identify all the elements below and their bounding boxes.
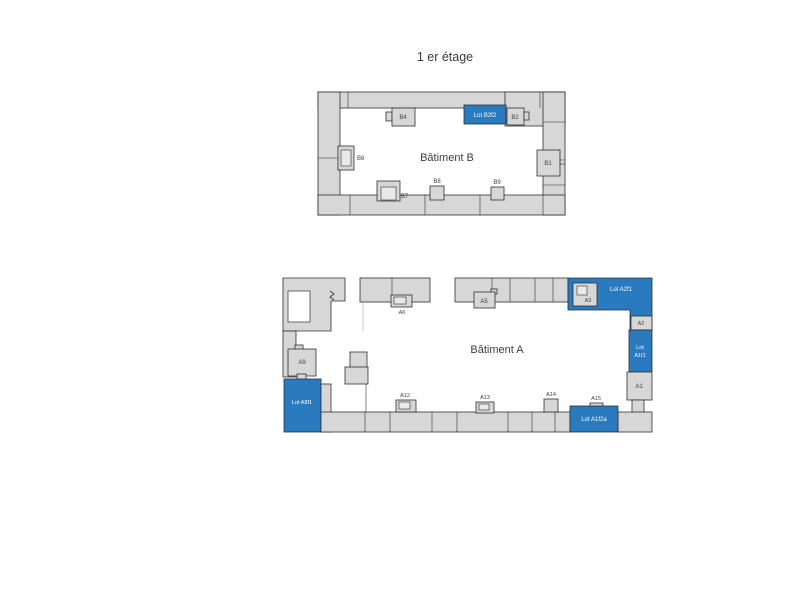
unit-a12-stair — [399, 402, 410, 409]
lot-a1f1-label-line1: Lot — [636, 345, 644, 351]
unit-b7-label: B7 — [401, 194, 409, 200]
unit-b1-label: B1 — [544, 161, 552, 167]
unit-b7-stair — [381, 187, 396, 200]
unit-a13-label: A13 — [480, 395, 490, 401]
building-a-bottom-wall — [321, 412, 570, 432]
unit-a14 — [544, 399, 558, 412]
unit-b4-label: B4 — [399, 115, 407, 121]
building-b-name: Bâtiment B — [420, 152, 474, 164]
unit-b2-label: B2 — [511, 115, 519, 121]
floor-plan-canvas: 1 er étage B4 Lot B2f2 B2 — [0, 0, 792, 594]
lot-a1f1-label-line2: A1f1 — [634, 353, 645, 359]
building-a-bottomright-corner — [618, 412, 652, 432]
page-title: 1 er étage — [417, 50, 473, 64]
unit-a5-label: A5 — [480, 299, 488, 305]
unit-b6-stair — [341, 150, 351, 166]
unit-a9-label: A9 — [298, 360, 306, 366]
unit-a6-stair — [394, 297, 406, 304]
unit-a2-label: A2 — [638, 321, 645, 327]
unit-b4-notch — [386, 112, 392, 121]
unit-a12-label: A12 — [400, 393, 410, 399]
unit-b9 — [491, 187, 504, 200]
unit-a3-label: A3 — [585, 298, 592, 304]
unit-a14-label: A14 — [546, 392, 556, 398]
unit-b2-notch — [524, 112, 529, 120]
unit-a1-label: A1 — [635, 384, 643, 390]
unit-a13-stair — [479, 404, 489, 410]
lot-a1f1[interactable] — [629, 330, 652, 372]
building-a-pillar-bottom — [345, 367, 368, 384]
unit-a6-label: A6 — [399, 310, 406, 316]
unit-b6-label: B6 — [357, 156, 365, 162]
building-a-corner-room — [288, 291, 310, 322]
unit-b8 — [430, 186, 444, 200]
lot-a2f1-label: Lot A2f1 — [610, 287, 633, 293]
building-a-top-wall-2 — [455, 278, 568, 302]
lot-a1f2a-label: Lot A1f2a — [581, 417, 607, 423]
unit-a15-label: A15 — [591, 396, 601, 402]
lot-a8f1-label: Lot A8f1 — [292, 400, 312, 406]
building-a-name: Bâtiment A — [470, 344, 524, 356]
building-b: B4 Lot B2f2 B2 B6 B1 B7 B8 B9 Bâtiment B — [318, 92, 565, 215]
building-a-pillar-top — [350, 352, 367, 368]
unit-b8-label: B8 — [433, 179, 441, 185]
unit-a3-stair — [577, 286, 587, 295]
building-a: A9 Lot A8f1 A6 A5 Lot A2f1 — [283, 278, 652, 432]
lot-b2f2-label: Lot B2f2 — [474, 113, 497, 119]
unit-b9-label: B9 — [493, 180, 501, 186]
